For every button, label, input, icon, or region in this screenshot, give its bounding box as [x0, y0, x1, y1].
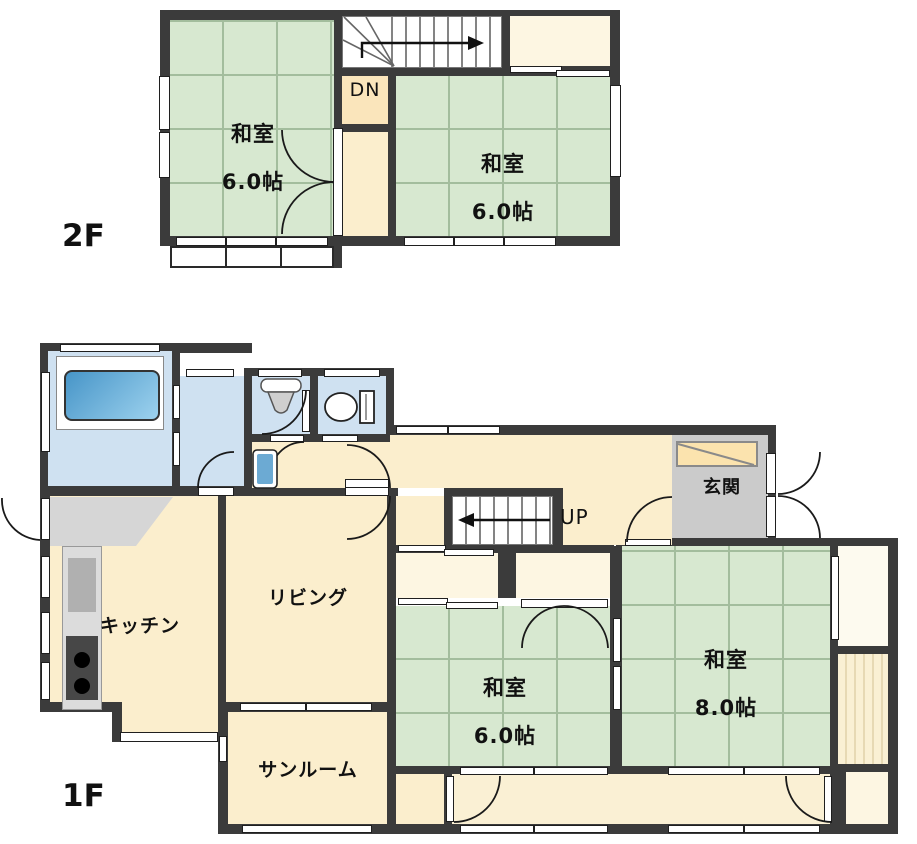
wall — [830, 766, 846, 834]
window — [186, 369, 234, 377]
sliding-door — [744, 767, 820, 775]
sliding-door — [510, 66, 562, 73]
wall — [218, 496, 226, 702]
toilet-room — [318, 376, 386, 434]
window — [454, 237, 504, 246]
window — [744, 825, 820, 833]
door-opening — [173, 385, 180, 419]
sliding-door — [446, 602, 498, 609]
room-name: 和室 — [481, 152, 525, 176]
door-leaf — [766, 453, 776, 494]
kitchen-lower — [122, 702, 218, 732]
room-name: 和室 — [483, 676, 527, 700]
sliding-door — [556, 70, 610, 77]
window — [41, 612, 50, 654]
window — [176, 237, 226, 246]
sliding-door — [444, 549, 494, 556]
door-opening — [345, 487, 389, 496]
wall — [218, 702, 228, 834]
f2-washitsu-right-label: 和室 6.0帖 — [443, 128, 563, 225]
door-opening — [322, 435, 358, 442]
living-label: リビング — [248, 588, 368, 610]
engawa-west-room — [396, 774, 444, 824]
window — [258, 369, 302, 377]
closet — [396, 553, 498, 598]
room-name: 和室 — [704, 648, 748, 672]
window — [41, 372, 50, 452]
floor-plan-canvas: 2F 1F 和室 6.0帖 和室 6.0帖 DN キッチン リビング サンルーム… — [0, 0, 917, 844]
f1-up-label: UP — [560, 506, 604, 529]
window — [668, 825, 744, 833]
window — [460, 825, 534, 833]
engawa-east — [838, 654, 888, 764]
sliding-door — [398, 545, 446, 552]
f2-closet — [510, 16, 610, 66]
window — [276, 237, 328, 246]
door-leaf — [446, 776, 454, 822]
sliding-door — [398, 598, 448, 605]
wall — [244, 434, 394, 442]
kitchen-label: キッチン — [80, 616, 200, 638]
door-opening — [198, 487, 234, 496]
wall — [310, 376, 318, 434]
washroom — [180, 376, 244, 486]
wall — [838, 646, 888, 654]
window — [226, 237, 276, 246]
bathtub — [64, 370, 160, 421]
sliding-door — [613, 666, 621, 710]
f1-stairwell — [452, 496, 553, 545]
door-opening — [270, 435, 304, 442]
window — [41, 556, 50, 598]
wall — [888, 538, 898, 834]
window — [448, 426, 500, 434]
room-size: 8.0帖 — [695, 696, 757, 720]
window — [240, 703, 306, 711]
door-leaf — [824, 776, 832, 822]
kitchen-stove — [66, 636, 98, 700]
window — [306, 703, 372, 711]
wall — [244, 368, 252, 486]
window — [159, 132, 170, 178]
room-name: 和室 — [231, 122, 275, 146]
closet — [516, 553, 610, 598]
engawa-east-room — [846, 772, 888, 824]
sliding-door — [460, 767, 534, 775]
f1-washitsu6-label: 和室 6.0帖 — [445, 652, 565, 749]
room-size: 6.0帖 — [222, 170, 284, 194]
door-opening — [41, 498, 50, 540]
sliding-door — [831, 556, 839, 640]
floor1-title: 1F — [62, 778, 105, 814]
f1-washitsu8-label: 和室 8.0帖 — [666, 624, 786, 721]
tokonoma-alcove — [838, 546, 888, 646]
window — [404, 237, 454, 246]
door-opening — [625, 539, 671, 546]
window — [396, 426, 448, 434]
window — [219, 736, 227, 762]
room-size: 6.0帖 — [472, 200, 534, 224]
window — [534, 825, 608, 833]
sunroom-label: サンルーム — [238, 760, 378, 782]
door-opening — [333, 128, 343, 236]
wall — [498, 552, 516, 598]
wall — [387, 488, 396, 834]
door-leaf — [302, 390, 310, 432]
genkan-label: 玄関 — [682, 478, 762, 499]
floor2-title: 2F — [62, 218, 105, 254]
window — [41, 662, 50, 700]
shoe-cabinet — [676, 441, 758, 467]
wall — [444, 488, 452, 553]
sliding-door — [668, 767, 744, 775]
wall — [444, 488, 564, 496]
f2-stairwell — [342, 16, 502, 68]
engawa-veranda — [452, 774, 830, 824]
room-size: 6.0帖 — [474, 724, 536, 748]
hallway — [396, 496, 444, 545]
window — [324, 369, 380, 377]
window — [60, 344, 160, 352]
door-leaf — [766, 496, 776, 537]
f2-balcony — [170, 246, 334, 268]
f2-dn-label: DN — [342, 80, 388, 102]
window — [159, 76, 170, 130]
window — [610, 85, 621, 177]
window — [242, 825, 372, 833]
window — [120, 732, 218, 742]
f2-washitsu-left-label: 和室 6.0帖 — [193, 98, 313, 195]
sliding-door — [613, 618, 621, 662]
sliding-door — [534, 767, 608, 775]
f2-corridor — [342, 132, 388, 236]
kitchen-sink — [68, 558, 96, 612]
door-opening — [521, 599, 608, 608]
door-opening — [173, 432, 180, 466]
window — [504, 237, 556, 246]
hallway — [390, 435, 672, 488]
wall — [334, 236, 342, 268]
